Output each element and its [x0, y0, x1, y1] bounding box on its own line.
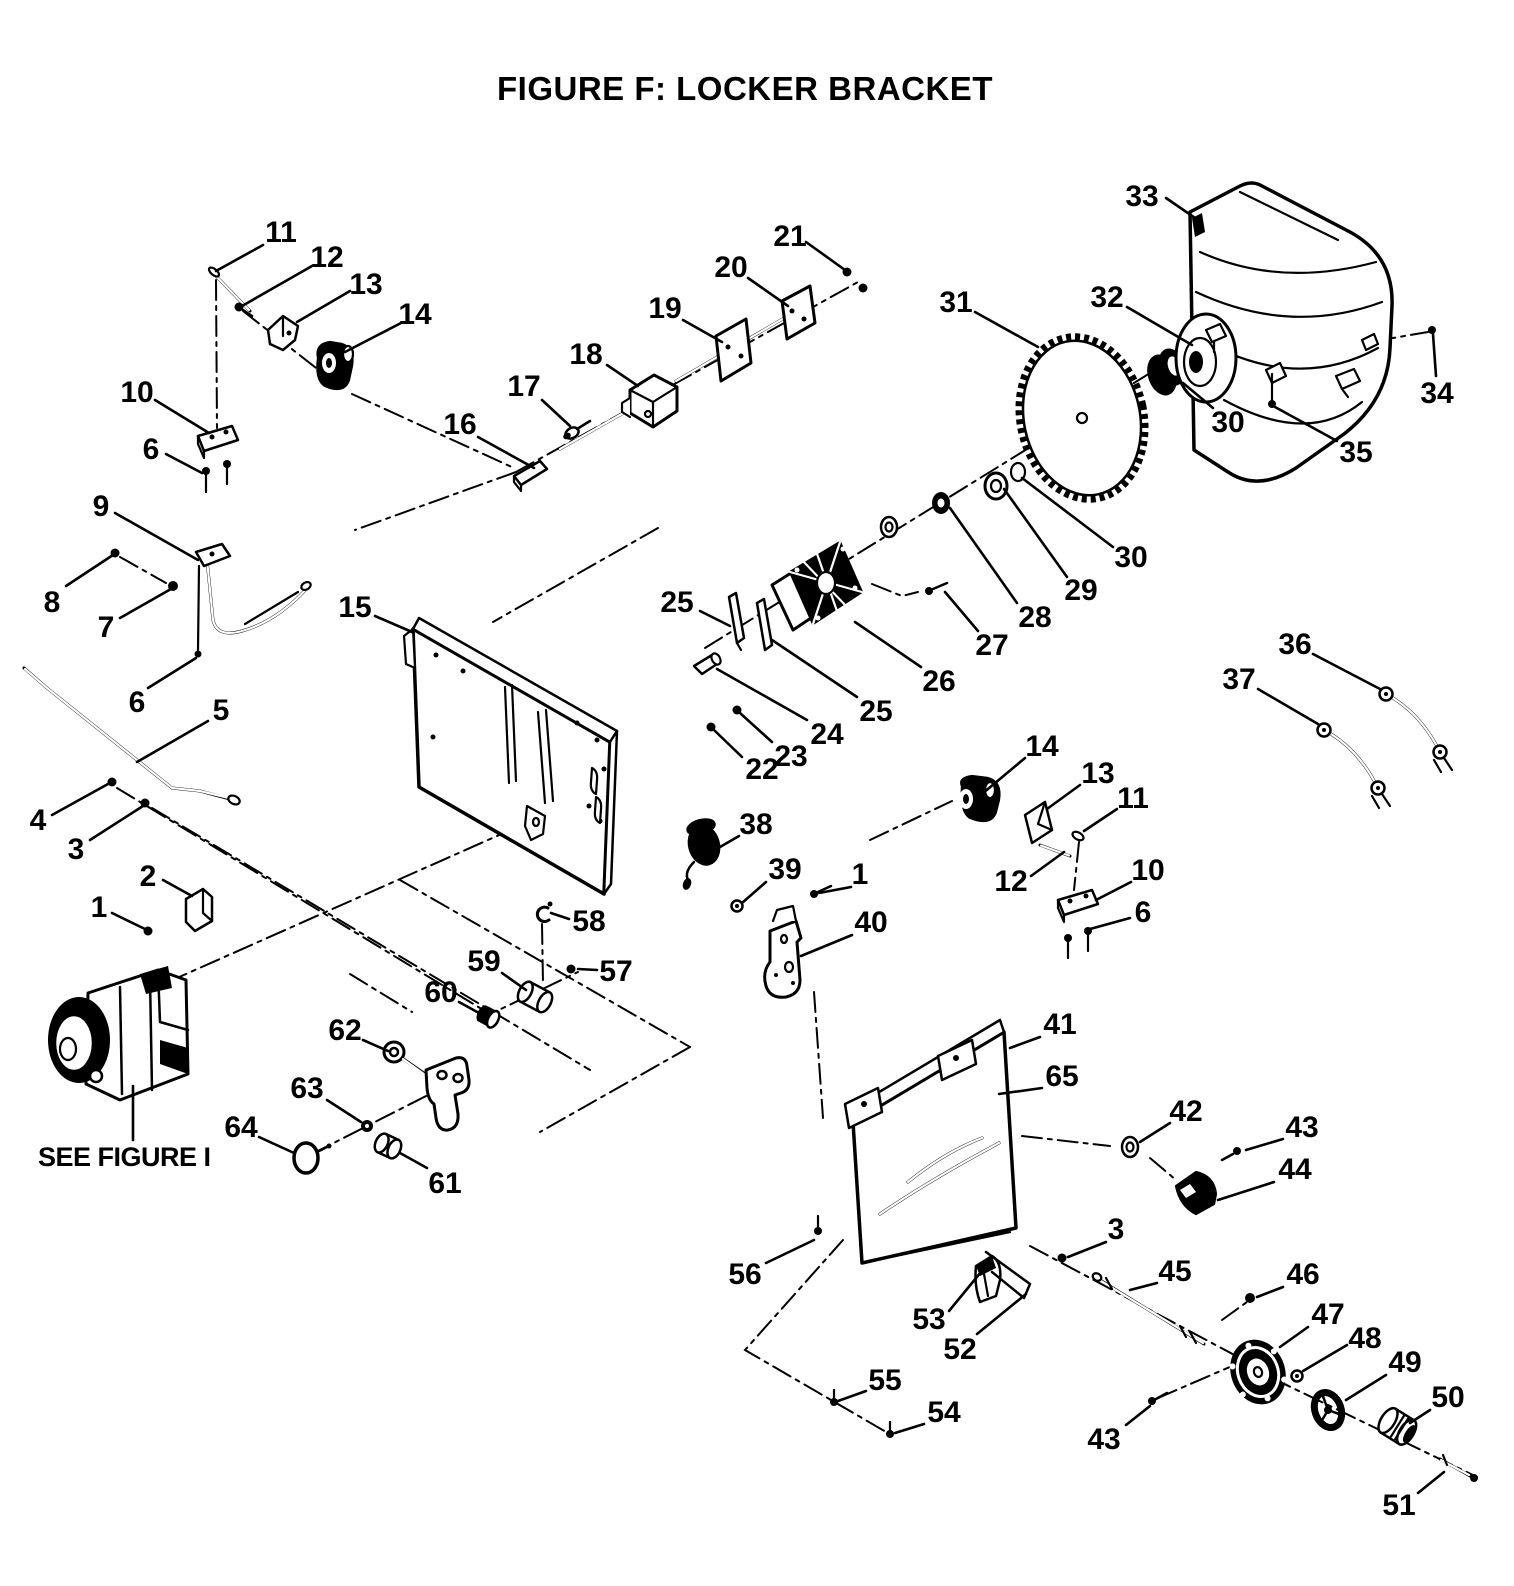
leader-line: [895, 1424, 924, 1433]
latch-bracket-assembly: [681, 817, 831, 998]
part-number-label: 42: [1169, 1095, 1202, 1128]
see-figure-note: SEE FIGURE I: [38, 1142, 211, 1172]
callout-56: 56: [728, 1240, 814, 1291]
part-number-label: 30: [1211, 406, 1244, 439]
leader-line: [855, 622, 921, 667]
callout-14: 14: [345, 298, 432, 352]
callout-26: 26: [855, 622, 956, 698]
part-number-label: 20: [714, 251, 747, 284]
part-number-label: 13: [1081, 757, 1114, 790]
angle-plate: [845, 1020, 1016, 1263]
part-number-label: 36: [1278, 628, 1311, 661]
leader-line: [806, 242, 845, 270]
callout-3: 3: [68, 806, 143, 866]
leader-line: [459, 1002, 479, 1013]
part-number-label: 46: [1286, 1258, 1319, 1291]
callout-37: 37: [1222, 663, 1318, 724]
leader-line: [717, 669, 807, 720]
part-number-label: 61: [428, 1167, 461, 1200]
leader-line: [950, 508, 1017, 603]
callout-13: 13: [297, 268, 383, 322]
leader-line: [1140, 1123, 1170, 1142]
part-number-label: 15: [338, 591, 371, 624]
leader-line: [1246, 1139, 1283, 1150]
main-bracket-panel: [404, 618, 617, 894]
part-number-label: 25: [660, 586, 693, 619]
callout-43: 43: [1246, 1111, 1319, 1150]
callout-62: 62: [328, 1014, 388, 1051]
leader-line: [363, 1040, 388, 1051]
part-number-label: 9: [93, 490, 110, 523]
leader-line: [945, 592, 978, 631]
callout-42: 42: [1140, 1095, 1203, 1142]
part-number-label: 29: [1064, 574, 1097, 607]
part-number-label: 53: [912, 1303, 945, 1336]
part-number-label: 49: [1388, 1346, 1421, 1379]
leader-line: [720, 836, 739, 847]
callout-1: 1: [91, 891, 145, 929]
leader-line: [1410, 1410, 1430, 1423]
leader-line: [683, 320, 722, 342]
hook-bracket: [111, 544, 313, 658]
leader-line: [242, 266, 312, 306]
part-number-label: 12: [994, 865, 1027, 898]
rail-assembly: [514, 268, 868, 492]
part-number-label: 43: [1285, 1111, 1318, 1144]
part-number-label: 41: [1043, 1008, 1076, 1041]
part-number-label: 39: [768, 853, 801, 886]
callout-27: 27: [945, 592, 1009, 662]
leader-line: [1218, 1182, 1274, 1200]
callout-14: 14: [976, 730, 1059, 799]
part-number-label: 52: [943, 1333, 976, 1366]
callout-29: 29: [1004, 489, 1098, 607]
callout-65: 65: [999, 1060, 1079, 1094]
callout-21: 21: [773, 220, 845, 270]
part-number-label: 24: [810, 718, 844, 751]
leader-line: [137, 721, 208, 762]
callout-31: 31: [939, 286, 1038, 347]
callout-16: 16: [443, 408, 534, 468]
part-number-label: 63: [290, 1072, 323, 1105]
callout-55: 55: [838, 1364, 902, 1401]
callout-9: 9: [93, 490, 198, 560]
part-number-label: 8: [44, 586, 61, 619]
part-number-label: 28: [1018, 601, 1051, 634]
callout-20: 20: [714, 251, 788, 306]
leader-line: [740, 713, 772, 742]
callout-51: 51: [1382, 1472, 1444, 1522]
leader-line: [1258, 689, 1318, 724]
leader-line: [66, 555, 113, 586]
leader-line: [1047, 785, 1080, 809]
part-number-label: 47: [1311, 1298, 1344, 1331]
part-number-label: 12: [310, 241, 343, 274]
callout-12: 12: [242, 241, 344, 306]
leader-line: [700, 611, 730, 626]
leader-line: [115, 513, 198, 560]
part-number-label: 6: [1135, 896, 1152, 929]
callout-64: 64: [224, 1111, 294, 1153]
part-number-label: 10: [1131, 854, 1164, 887]
leader-line: [163, 880, 192, 896]
part-number-label: 56: [728, 1258, 761, 1291]
leader-line: [551, 913, 569, 919]
parts-diagram-page: FIGURE F: LOCKER BRACKET SEE FIGURE I 11…: [0, 0, 1514, 1586]
callout-40: 40: [801, 906, 888, 956]
part-number-label: 19: [648, 292, 681, 325]
leader-line: [155, 400, 209, 433]
part-number-label: 60: [424, 976, 457, 1009]
leader-line: [120, 589, 171, 618]
part-number-label: 21: [773, 220, 806, 253]
part-number-label: 25: [859, 695, 892, 728]
callout-19: 19: [648, 292, 722, 342]
leader-line: [259, 1137, 294, 1153]
callout-44: 44: [1218, 1153, 1312, 1200]
leader-line: [297, 291, 350, 322]
part-number-label: 5: [213, 694, 230, 727]
part-number-label: 18: [569, 338, 602, 371]
part-number-label: 6: [129, 686, 146, 719]
leader-line: [772, 640, 857, 697]
callout-32: 32: [1090, 281, 1192, 345]
callout-6: 6: [143, 433, 202, 473]
leader-line: [1257, 1287, 1283, 1297]
part-number-label: 35: [1339, 436, 1372, 469]
callout-2: 2: [140, 860, 192, 896]
part-number-label: 3: [68, 833, 85, 866]
callout-57: 57: [578, 955, 633, 988]
part-number-label: 50: [1431, 1381, 1464, 1414]
part-number-label: 40: [854, 906, 887, 939]
callout-6: 6: [129, 658, 196, 719]
callout-7: 7: [98, 589, 171, 644]
leader-line: [148, 658, 196, 688]
callout-15: 15: [338, 591, 412, 632]
callout-46: 46: [1257, 1258, 1320, 1297]
callout-3: 3: [1068, 1213, 1124, 1257]
callout-33: 33: [1125, 180, 1198, 220]
callout-11: 11: [216, 216, 297, 271]
leader-line: [1303, 1345, 1347, 1371]
part-number-label: 4: [30, 804, 47, 837]
leader-line: [1127, 307, 1192, 345]
callout-58: 58: [551, 905, 606, 938]
part-number-label: 2: [140, 860, 157, 893]
callout-34: 34: [1420, 334, 1454, 410]
callout-25: 25: [660, 586, 730, 626]
leader-line: [1346, 1375, 1386, 1400]
callout-8: 8: [44, 555, 113, 619]
leader-line: [1280, 1327, 1308, 1347]
part-number-label: 58: [572, 905, 605, 938]
callout-61: 61: [400, 1153, 462, 1200]
callout-43: 43: [1087, 1406, 1150, 1456]
part-number-label: 55: [868, 1364, 901, 1397]
callout-41: 41: [1010, 1008, 1077, 1048]
part-number-label: 11: [265, 216, 297, 249]
leader-line: [1130, 1283, 1157, 1290]
leader-line: [112, 913, 145, 929]
bearing-plate-assembly: [694, 542, 947, 732]
callout-12: 12: [994, 852, 1064, 898]
callout-25: 25: [772, 640, 893, 728]
leader-line: [1084, 809, 1117, 831]
part-number-label: 51: [1382, 1489, 1415, 1522]
part-number-label: 11: [1117, 782, 1149, 815]
part-number-label: 13: [349, 268, 382, 301]
leader-line: [1010, 1037, 1040, 1048]
part-number-label: 10: [120, 376, 153, 409]
leader-line: [838, 1391, 866, 1401]
leader-line: [1090, 918, 1130, 929]
lever-assembly: [294, 1042, 469, 1173]
callout-39: 39: [742, 853, 802, 903]
leader-line: [1031, 852, 1064, 876]
part-number-label: 1: [852, 858, 869, 891]
callout-36: 36: [1278, 628, 1380, 689]
part-number-label: 45: [1158, 1255, 1191, 1288]
part-number-label: 38: [739, 808, 772, 841]
callout-60: 60: [424, 976, 479, 1013]
leader-line: [478, 437, 534, 468]
leader-line: [1096, 882, 1131, 900]
part-number-label: 33: [1125, 180, 1158, 213]
part-number-label: 3: [1108, 1213, 1125, 1246]
part-number-label: 26: [922, 665, 955, 698]
callout-53: 53: [912, 1272, 981, 1336]
part-number-label: 54: [927, 1396, 961, 1429]
leader-line: [607, 365, 638, 386]
callout-45: 45: [1130, 1255, 1192, 1290]
part-number-label: 37: [1222, 663, 1255, 696]
part-number-label: 43: [1087, 1423, 1120, 1456]
leader-line: [1004, 489, 1067, 577]
leader-line: [1313, 654, 1380, 689]
leader-line: [400, 1153, 427, 1168]
callout-10: 10: [120, 376, 209, 433]
part-number-label: 59: [467, 945, 500, 978]
leader-line: [801, 935, 852, 956]
part-number-label: 6: [143, 433, 160, 466]
part-number-label: 57: [599, 955, 632, 988]
leader-line: [1418, 1472, 1444, 1493]
leader-line: [327, 1100, 361, 1122]
leader-line: [216, 245, 263, 271]
exploded-parts-diagram: FIGURE F: LOCKER BRACKET SEE FIGURE I 11…: [0, 0, 1514, 1586]
callout-63: 63: [290, 1072, 361, 1122]
part-number-label: 17: [507, 370, 540, 403]
callout-59: 59: [467, 945, 526, 990]
part-number-label: 30: [1114, 541, 1147, 574]
leader-line: [1068, 1242, 1106, 1257]
callout-13: 13: [1047, 757, 1115, 809]
guide-assembly-right: [959, 776, 1098, 958]
pivot-links: [1318, 688, 1453, 809]
figure-title: FIGURE F: LOCKER BRACKET: [497, 70, 993, 107]
callout-6: 6: [1090, 896, 1151, 929]
callout-4: 4: [30, 784, 108, 837]
part-number-label: 48: [1348, 1322, 1381, 1355]
leader-line: [375, 616, 412, 632]
callout-54: 54: [895, 1396, 961, 1433]
part-number-label: 22: [745, 753, 778, 786]
part-number-label: 14: [398, 298, 432, 331]
part-number-label: 62: [328, 1014, 361, 1047]
guide-assembly-left: [198, 266, 353, 492]
callout-18: 18: [569, 338, 638, 386]
leader-line: [766, 1240, 814, 1263]
part-number-label: 65: [1045, 1060, 1078, 1093]
part-number-label: 16: [443, 408, 476, 441]
part-number-label: 34: [1420, 377, 1454, 410]
leader-line: [748, 278, 788, 306]
part-number-label: 31: [939, 286, 972, 319]
part-number-label: 14: [1025, 730, 1059, 763]
part-number-label: 44: [1278, 1153, 1312, 1186]
part-number-label: 23: [774, 740, 807, 773]
callout-10: 10: [1096, 854, 1165, 900]
part-number-label: 1: [91, 891, 108, 924]
part-number-label: 7: [98, 611, 115, 644]
motor: [48, 966, 188, 1140]
callout-38: 38: [720, 808, 773, 847]
callout-47: 47: [1280, 1298, 1345, 1347]
part-number-label: 64: [224, 1111, 258, 1144]
callout-5: 5: [137, 694, 229, 762]
leader-line: [90, 806, 143, 840]
leader-line: [975, 312, 1038, 347]
part-number-label: 27: [975, 629, 1008, 662]
callout-17: 17: [507, 370, 570, 426]
leader-line: [742, 882, 766, 903]
leader-line: [52, 784, 108, 815]
leader-line: [578, 969, 597, 970]
leader-line: [502, 973, 526, 990]
leader-line: [714, 730, 742, 757]
leader-line: [166, 454, 202, 473]
leader-line: [1126, 1406, 1150, 1425]
part-number-label: 32: [1090, 281, 1123, 314]
leader-line: [542, 400, 570, 426]
callout-50: 50: [1410, 1381, 1465, 1423]
leader-line: [1433, 334, 1436, 376]
leader-line: [345, 323, 401, 352]
